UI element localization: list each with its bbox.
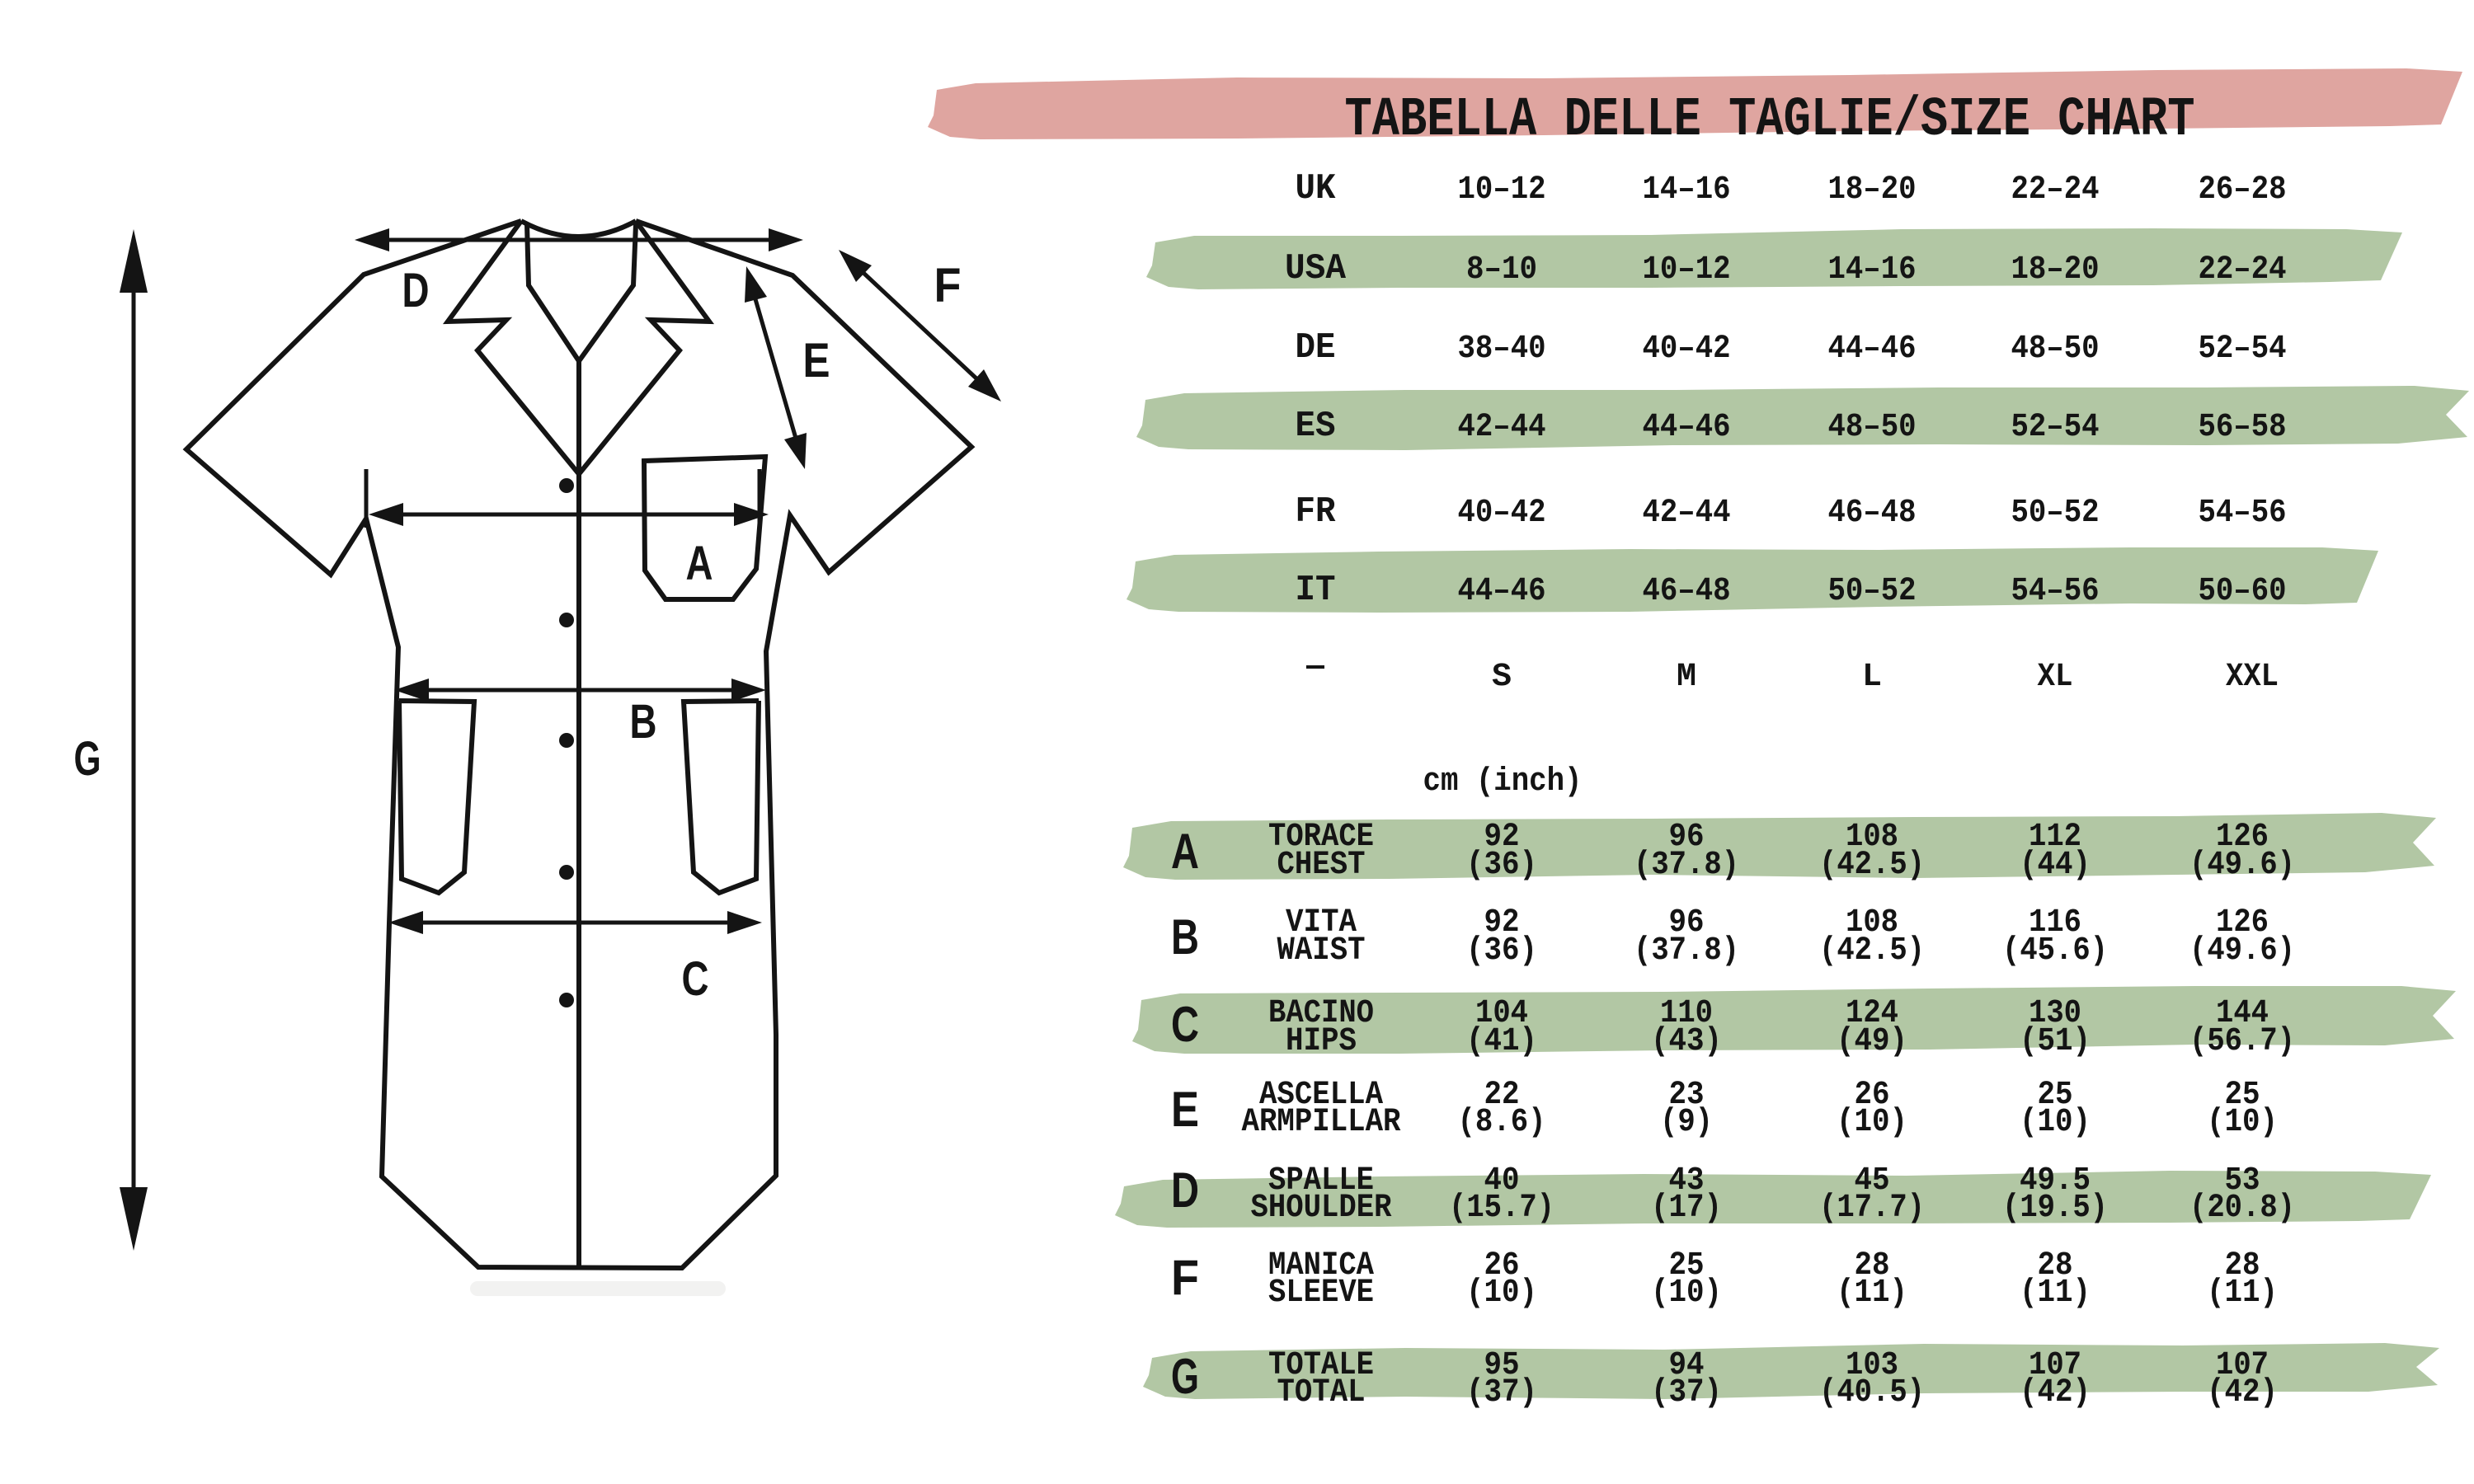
svg-text:(37.8): (37.8) — [1634, 932, 1739, 970]
svg-text:44–46: 44–46 — [1458, 573, 1546, 610]
svg-text:10–12: 10–12 — [1458, 171, 1546, 209]
svg-text:(56.7): (56.7) — [2189, 1023, 2295, 1060]
svg-text:10–12: 10–12 — [1643, 251, 1731, 289]
svg-text:52–54: 52–54 — [2199, 331, 2287, 368]
svg-text:52–54: 52–54 — [2011, 409, 2100, 446]
svg-text:(42): (42) — [2207, 1374, 2278, 1411]
svg-text:WAIST: WAIST — [1277, 932, 1366, 970]
svg-text:FR: FR — [1296, 491, 1337, 533]
svg-text:48–50: 48–50 — [2011, 331, 2100, 368]
svg-text:USA: USA — [1285, 248, 1347, 289]
svg-text:E: E — [1171, 1082, 1199, 1137]
svg-text:L: L — [1862, 659, 1882, 696]
svg-text:46–48: 46–48 — [1643, 573, 1731, 610]
svg-text:(49): (49) — [1837, 1023, 1907, 1060]
svg-text:ARMPILLAR: ARMPILLAR — [1242, 1104, 1401, 1141]
svg-text:S: S — [1492, 659, 1512, 696]
svg-text:26–28: 26–28 — [2199, 171, 2287, 209]
svg-text:D: D — [1171, 1162, 1199, 1218]
svg-text:B: B — [630, 695, 657, 749]
svg-text:UK: UK — [1296, 168, 1337, 209]
svg-text:(40.5): (40.5) — [1819, 1374, 1925, 1411]
svg-text:DE: DE — [1296, 327, 1336, 369]
svg-text:XXL: XXL — [2226, 659, 2279, 696]
svg-text:(11): (11) — [2207, 1275, 2278, 1312]
svg-text:(49.6): (49.6) — [2189, 847, 2295, 884]
svg-text:(10): (10) — [2020, 1104, 2091, 1141]
svg-text:38–40: 38–40 — [1458, 331, 1546, 368]
svg-text:A: A — [1171, 824, 1199, 879]
svg-text:(10): (10) — [1651, 1275, 1722, 1312]
svg-text:42–44: 42–44 — [1458, 409, 1546, 446]
svg-text:F: F — [934, 259, 962, 312]
svg-text:C: C — [1171, 997, 1199, 1052]
svg-text:14–16: 14–16 — [1643, 171, 1731, 209]
svg-text:(45.6): (45.6) — [2002, 932, 2108, 970]
svg-text:(10): (10) — [1466, 1275, 1537, 1312]
svg-text:(51): (51) — [2020, 1023, 2091, 1060]
svg-text:SHOULDER: SHOULDER — [1251, 1190, 1392, 1227]
svg-text:(8.6): (8.6) — [1458, 1104, 1546, 1141]
svg-text:8–10: 8–10 — [1466, 251, 1537, 289]
svg-text:CHEST: CHEST — [1277, 847, 1366, 884]
svg-text:(42.5): (42.5) — [1819, 847, 1925, 884]
svg-text:(49.6): (49.6) — [2189, 932, 2295, 970]
svg-text:(10): (10) — [1837, 1104, 1907, 1141]
svg-text:(9): (9) — [1660, 1104, 1713, 1141]
svg-text:44–46: 44–46 — [1828, 331, 1917, 368]
svg-text:D: D — [402, 264, 430, 317]
svg-text:22–24: 22–24 — [2199, 251, 2287, 289]
svg-text:(10): (10) — [2207, 1104, 2278, 1141]
svg-text:(11): (11) — [1837, 1275, 1907, 1312]
svg-text:ES: ES — [1296, 406, 1336, 447]
svg-text:TABELLA DELLE TAGLIE/SIZE CHAR: TABELLA DELLE TAGLIE/SIZE CHART — [1345, 89, 2195, 152]
svg-text:22–24: 22–24 — [2011, 171, 2100, 209]
svg-text:(43): (43) — [1651, 1023, 1722, 1060]
svg-text:B: B — [1171, 909, 1199, 965]
svg-text:(37): (37) — [1651, 1374, 1722, 1411]
svg-text:F: F — [1171, 1250, 1199, 1305]
svg-text:(36): (36) — [1466, 932, 1537, 970]
svg-text:(37): (37) — [1466, 1374, 1537, 1411]
svg-text:46–48: 46–48 — [1828, 495, 1917, 532]
svg-text:(42): (42) — [2020, 1374, 2091, 1411]
svg-text:(17.7): (17.7) — [1819, 1190, 1925, 1227]
svg-text:–: – — [1303, 649, 1328, 686]
svg-text:A: A — [686, 537, 713, 590]
svg-text:XL: XL — [2038, 659, 2073, 696]
svg-text:IT: IT — [1296, 570, 1336, 611]
svg-text:cm (inch): cm (inch) — [1423, 763, 1583, 801]
svg-text:E: E — [803, 334, 830, 387]
svg-text:40–42: 40–42 — [1643, 331, 1731, 368]
svg-text:G: G — [1171, 1349, 1199, 1404]
svg-text:50–52: 50–52 — [1828, 573, 1917, 610]
svg-text:44–46: 44–46 — [1643, 409, 1731, 446]
svg-text:(36): (36) — [1466, 847, 1537, 884]
svg-text:42–44: 42–44 — [1643, 495, 1731, 532]
svg-text:(44): (44) — [2020, 847, 2091, 884]
svg-text:M: M — [1677, 659, 1696, 696]
svg-text:(41): (41) — [1466, 1023, 1537, 1060]
svg-text:50–52: 50–52 — [2011, 495, 2100, 532]
svg-text:G: G — [74, 732, 101, 786]
svg-text:(11): (11) — [2020, 1275, 2091, 1312]
svg-text:14–16: 14–16 — [1828, 251, 1917, 289]
svg-text:SLEEVE: SLEEVE — [1268, 1275, 1374, 1312]
svg-text:(42.5): (42.5) — [1819, 932, 1925, 970]
svg-text:54–56: 54–56 — [2199, 495, 2287, 532]
svg-text:(19.5): (19.5) — [2002, 1190, 2108, 1227]
svg-text:C: C — [682, 952, 709, 1006]
svg-text:18–20: 18–20 — [1828, 171, 1917, 209]
svg-text:(17): (17) — [1651, 1190, 1722, 1227]
svg-text:(15.7): (15.7) — [1449, 1190, 1554, 1227]
svg-text:(20.8): (20.8) — [2189, 1190, 2295, 1227]
svg-text:48–50: 48–50 — [1828, 409, 1917, 446]
svg-text:HIPS: HIPS — [1286, 1023, 1357, 1060]
svg-text:56–58: 56–58 — [2199, 409, 2287, 446]
svg-text:(37.8): (37.8) — [1634, 847, 1739, 884]
svg-text:50–60: 50–60 — [2199, 573, 2287, 610]
svg-text:18–20: 18–20 — [2011, 251, 2100, 289]
svg-text:54–56: 54–56 — [2011, 573, 2100, 610]
svg-text:TOTAL: TOTAL — [1277, 1374, 1366, 1411]
svg-text:40–42: 40–42 — [1458, 495, 1546, 532]
